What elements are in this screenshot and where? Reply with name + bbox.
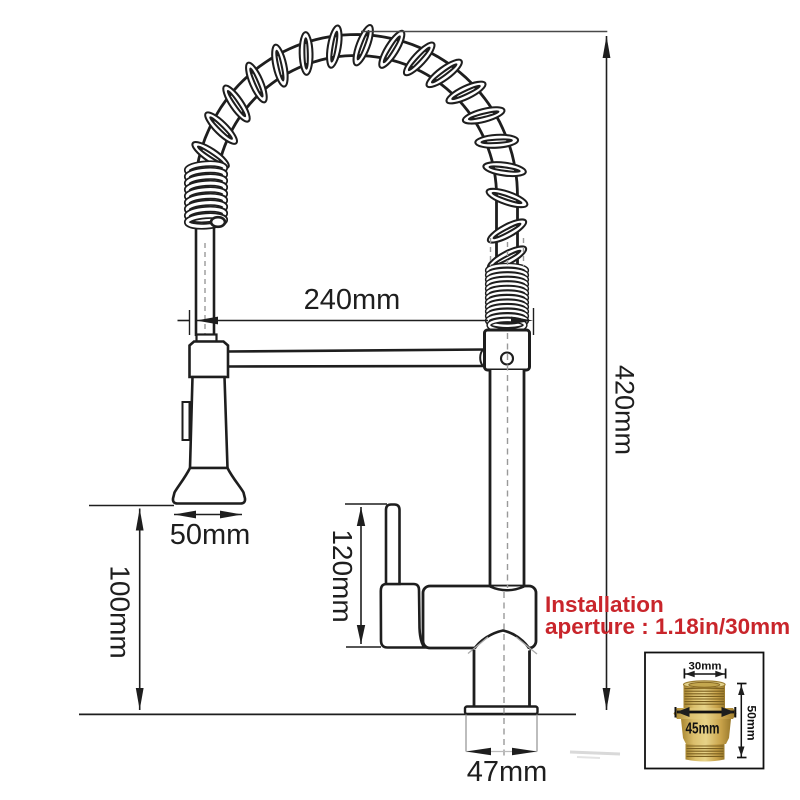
svg-text:120mm: 120mm: [327, 529, 358, 622]
svg-text:50mm: 50mm: [170, 519, 251, 551]
svg-text:420mm: 420mm: [610, 365, 640, 455]
svg-text:50mm: 50mm: [745, 705, 759, 740]
svg-text:30mm: 30mm: [689, 660, 722, 672]
svg-text:aperture : 1.18in/30mm: aperture : 1.18in/30mm: [545, 614, 790, 639]
svg-text:240mm: 240mm: [304, 284, 401, 316]
svg-text:45mm: 45mm: [686, 721, 720, 738]
svg-text:100mm: 100mm: [105, 565, 136, 658]
svg-text:47mm: 47mm: [467, 756, 548, 788]
